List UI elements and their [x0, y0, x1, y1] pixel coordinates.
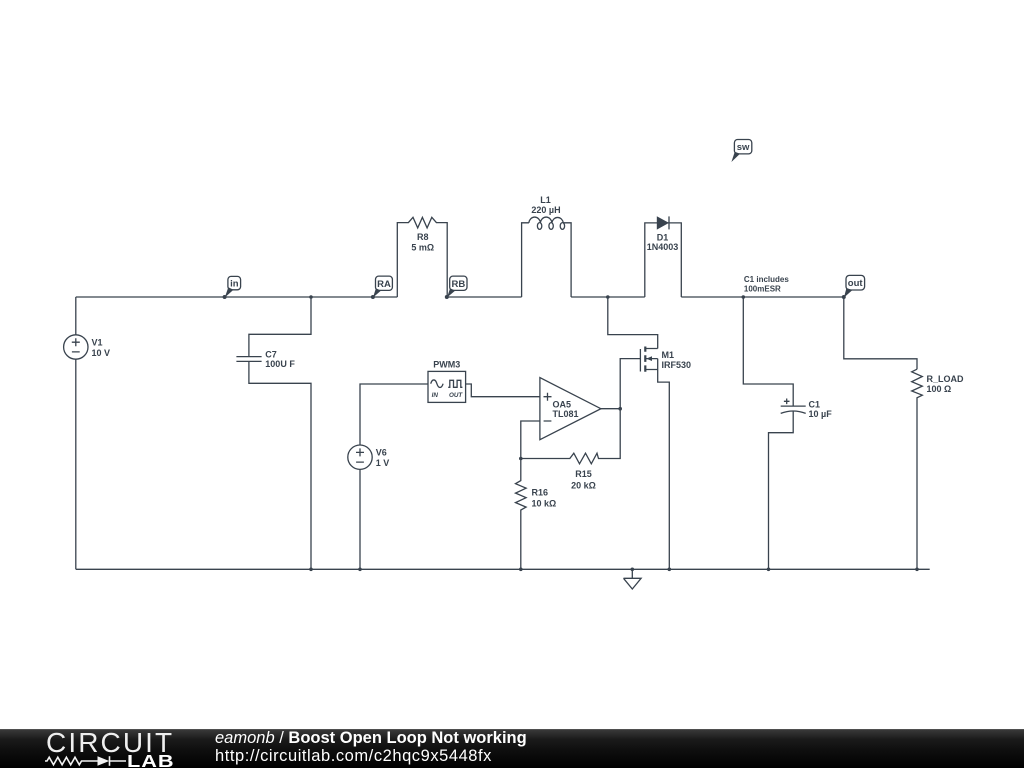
svg-text:R15: R15: [575, 469, 592, 479]
svg-text:OA5: OA5: [553, 399, 572, 409]
svg-text:220 µH: 220 µH: [531, 205, 560, 215]
svg-text:10 V: 10 V: [92, 348, 111, 358]
svg-text:RB: RB: [452, 279, 466, 290]
svg-text:in: in: [230, 279, 239, 290]
svg-text:5 mΩ: 5 mΩ: [411, 242, 434, 252]
svg-text:M1: M1: [662, 350, 675, 360]
svg-text:R16: R16: [532, 487, 549, 497]
svg-text:1 V: 1 V: [376, 458, 390, 468]
svg-text:1N4003: 1N4003: [647, 242, 679, 252]
svg-text:100U F: 100U F: [265, 359, 295, 369]
svg-text:V1: V1: [92, 337, 103, 347]
svg-text:20 kΩ: 20 kΩ: [571, 481, 596, 491]
svg-text:10 kΩ: 10 kΩ: [532, 499, 557, 509]
svg-text:100mESR: 100mESR: [744, 285, 781, 294]
svg-text:out: out: [848, 278, 864, 289]
svg-text:C1 includes: C1 includes: [744, 275, 789, 284]
svg-text:D1: D1: [657, 232, 669, 242]
svg-text:10 µF: 10 µF: [809, 409, 833, 419]
svg-text:V6: V6: [376, 448, 387, 458]
svg-text:TL081: TL081: [553, 409, 579, 419]
svg-text:100 Ω: 100 Ω: [927, 384, 952, 394]
svg-text:PWM3: PWM3: [433, 359, 460, 369]
svg-text:C1: C1: [809, 399, 821, 409]
svg-text:sw: sw: [737, 142, 750, 153]
svg-text:IRF530: IRF530: [662, 360, 692, 370]
svg-text:R8: R8: [417, 232, 429, 242]
svg-text:IN: IN: [432, 392, 439, 399]
svg-text:R_LOAD: R_LOAD: [927, 374, 965, 384]
svg-text:RA: RA: [377, 279, 391, 290]
svg-text:C7: C7: [265, 350, 277, 360]
svg-text:L1: L1: [540, 195, 551, 205]
svg-text:OUT: OUT: [449, 392, 463, 399]
